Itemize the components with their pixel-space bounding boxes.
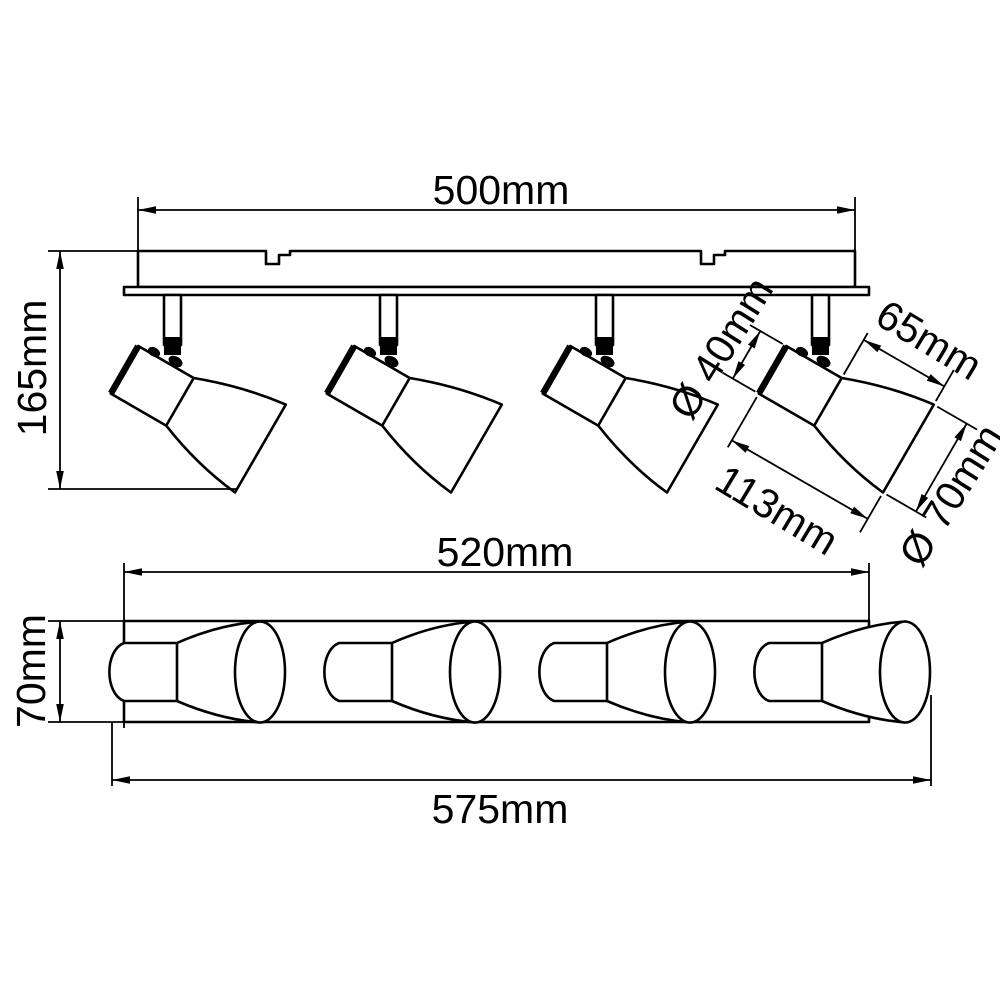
dim-label-bracket-width: 500mm: [433, 167, 570, 213]
technical-drawing-page: 500mm 165mm Ø 40mm 65mm 113m: [0, 0, 1000, 1000]
dim-label-track-length: 520mm: [437, 529, 574, 575]
dim-label-overall-height: 165mm: [9, 300, 55, 437]
drawing-background: [0, 0, 1000, 1000]
technical-drawing-canvas: 500mm 165mm Ø 40mm 65mm 113m: [0, 0, 1000, 1000]
dim-label-overall-length: 575mm: [432, 786, 569, 832]
dim-label-track-depth: 70mm: [8, 614, 54, 728]
